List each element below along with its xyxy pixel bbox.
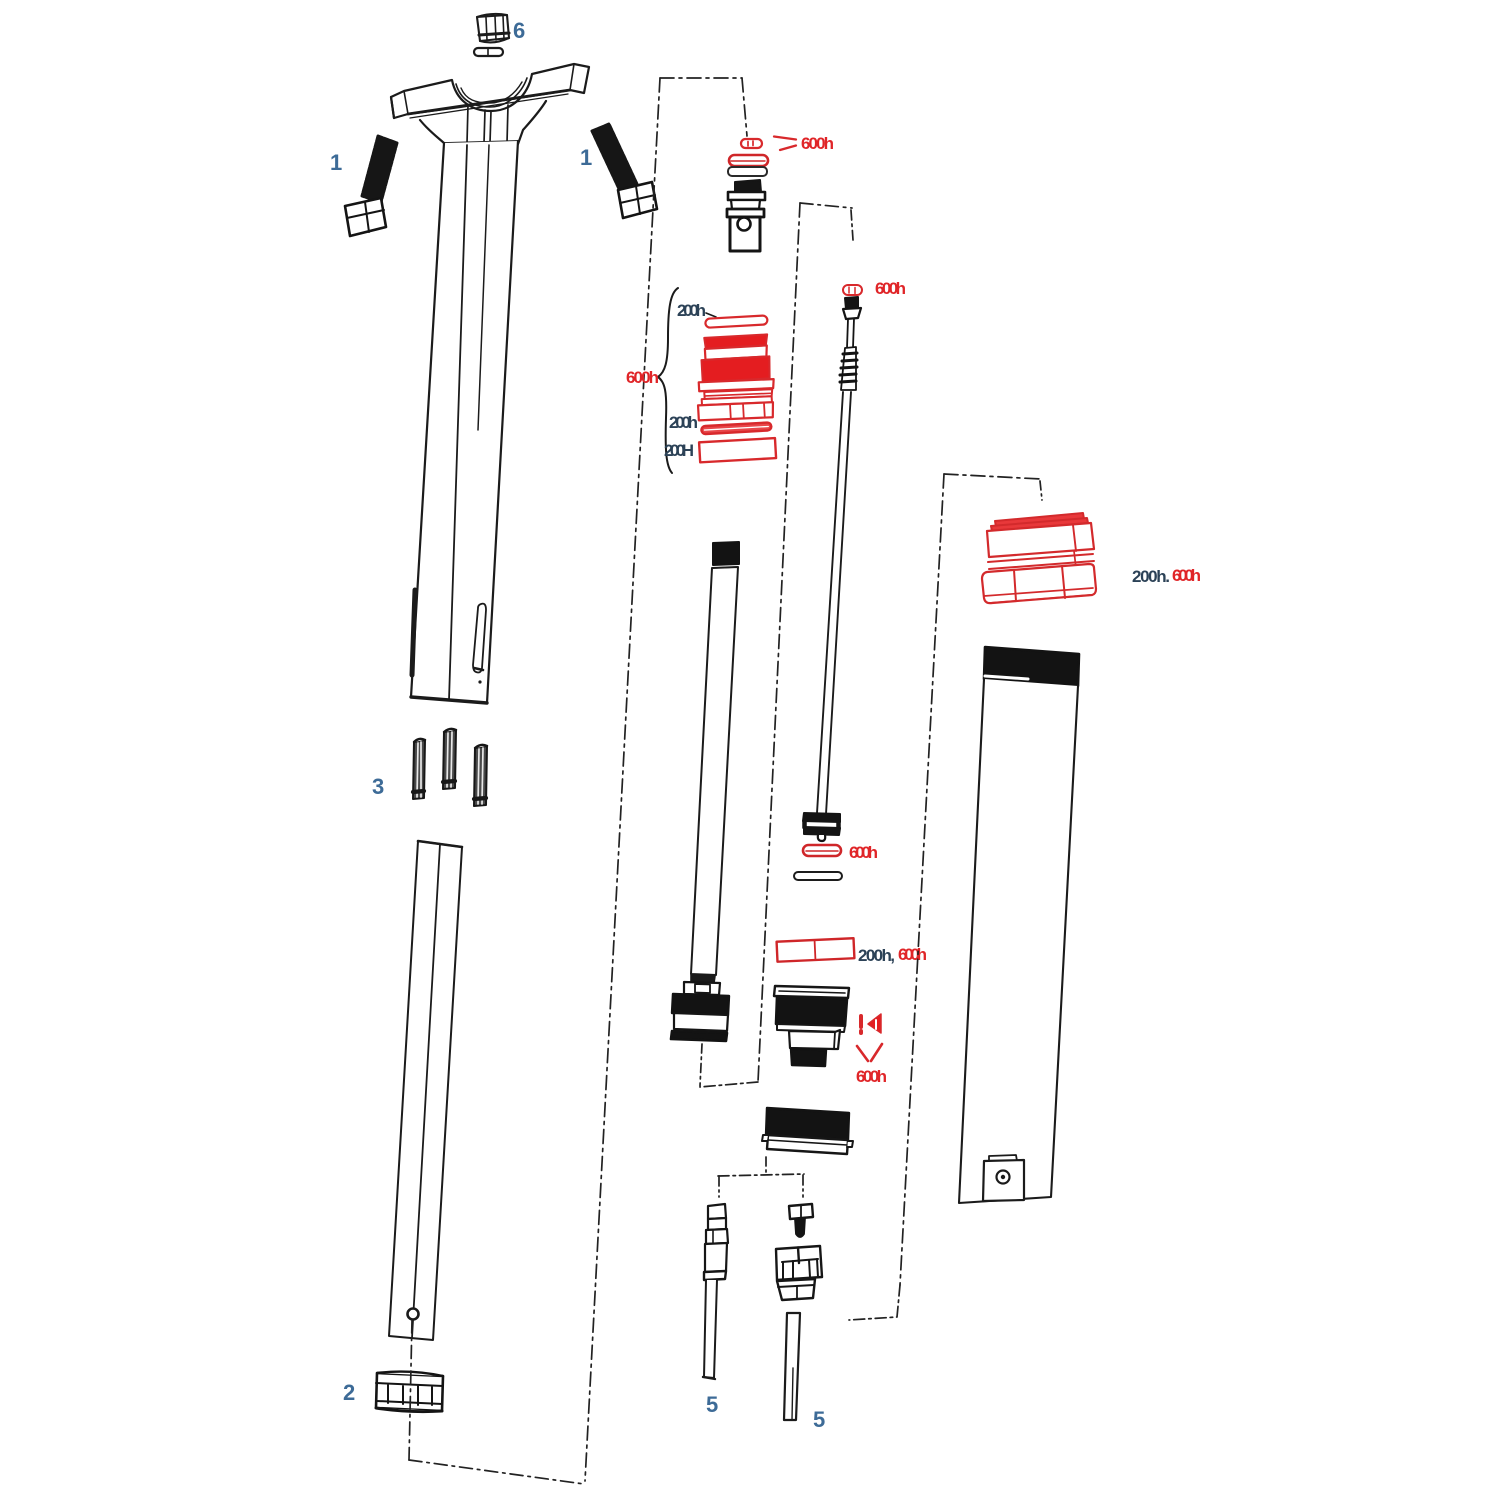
svg-text:600h: 600h	[626, 368, 659, 387]
svg-text:600h: 600h	[801, 134, 834, 153]
svg-text:3: 3	[372, 774, 384, 799]
svg-text:600h: 600h	[875, 279, 906, 298]
svg-text:200h: 200h	[677, 301, 706, 320]
svg-text:1: 1	[330, 150, 342, 175]
svg-text:1: 1	[580, 145, 592, 170]
svg-text:5: 5	[813, 1407, 825, 1432]
svg-text:600h: 600h	[1172, 566, 1201, 585]
svg-text:600h: 600h	[849, 843, 878, 862]
svg-text:200h: 200h	[669, 413, 698, 432]
svg-text:200h,: 200h,	[858, 946, 895, 965]
svg-text:2: 2	[343, 1380, 355, 1405]
svg-text:600h: 600h	[856, 1067, 887, 1086]
svg-text:200h.: 200h.	[1132, 567, 1170, 586]
svg-text:5: 5	[706, 1392, 718, 1417]
svg-text:6: 6	[513, 18, 525, 43]
svg-text:600h: 600h	[898, 945, 927, 964]
svg-text:200H: 200H	[664, 441, 694, 460]
